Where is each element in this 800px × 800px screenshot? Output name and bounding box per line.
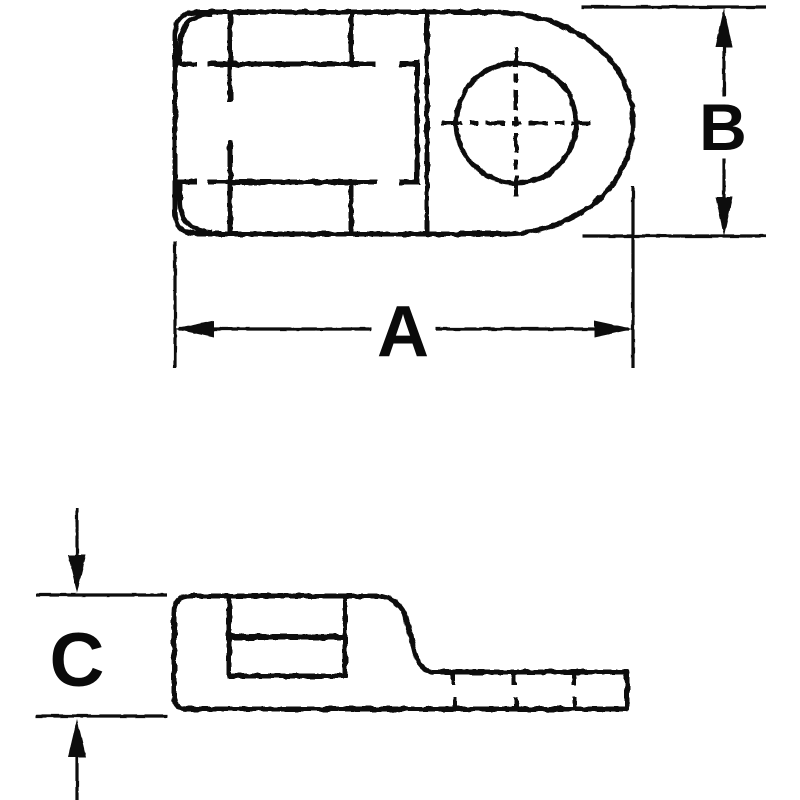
top-view-outline [175,12,633,234]
side-view [174,596,627,709]
dimension-a-label: A [377,292,429,372]
side-view-outline [174,596,627,709]
dim-b-arrow-up-icon [716,8,733,47]
top-view [175,12,633,234]
dim-b-arrow-down-icon [716,197,733,236]
dim-a-arrow-right-icon [594,321,633,338]
dim-c-arrow-up-icon [68,719,86,757]
dim-c-arrow-down-icon [68,555,86,593]
cable-tie-mount-drawing: A B C [0,0,800,800]
dimension-b-label: B [699,90,747,164]
dim-a-arrow-left-icon [175,321,214,338]
dimension-c-label: C [50,618,105,703]
technical-drawing-canvas: A B C [0,0,800,800]
